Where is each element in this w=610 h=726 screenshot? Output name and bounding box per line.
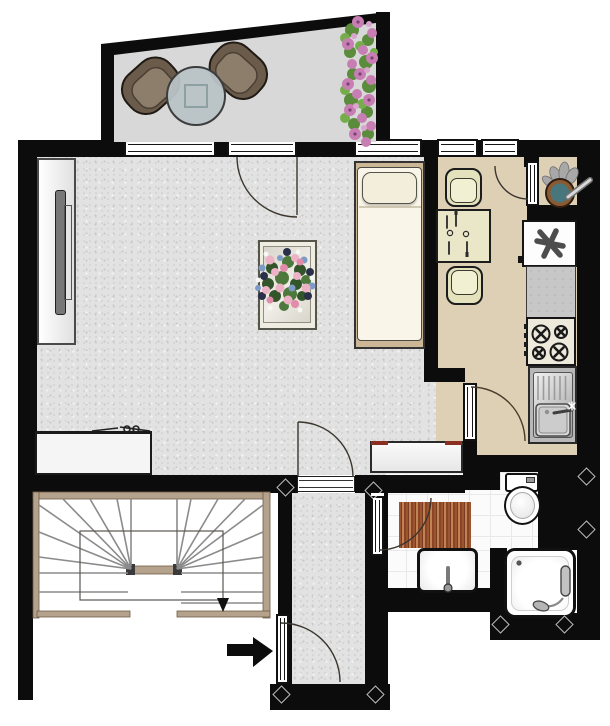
bathroom-door (371, 496, 384, 556)
kitchen-window-1 (437, 139, 478, 157)
staircase (33, 492, 270, 618)
balcony-floor (114, 23, 376, 142)
bath-mat (399, 502, 471, 548)
shower-tray-inner (511, 556, 569, 611)
sideboard-right-accent-left (371, 441, 388, 445)
entrance-door (276, 614, 289, 684)
wall-left-stairwell (18, 483, 33, 700)
balcony-table (167, 67, 225, 125)
kitchen-counter (526, 266, 576, 318)
sideboard-left (35, 431, 152, 475)
wall-balcony-left (101, 44, 114, 142)
wall-balcony-right (376, 12, 390, 142)
floor-plan (0, 0, 610, 726)
flower-table-top (263, 246, 311, 323)
bed-window (354, 139, 422, 157)
wall-kitchen-step (424, 368, 465, 382)
kitchen-chair-bottom-cushion (451, 270, 478, 295)
wall-balcony-top (101, 12, 388, 57)
wall-hallway-right (365, 553, 388, 687)
wall-right (577, 140, 600, 640)
balcony-door (227, 139, 297, 157)
balcony-flower-boxes (340, 16, 378, 147)
living-room-window (124, 139, 216, 157)
wall-bath-right-block (538, 455, 577, 550)
nook-door (526, 161, 539, 206)
wall-living-bottom-left (33, 475, 298, 493)
toilet-flush-button (526, 477, 535, 483)
bed-pillow (362, 172, 417, 204)
freezer (522, 220, 577, 267)
wall-hallway-right-upper-b (384, 490, 388, 556)
kitchen-sink-tray (533, 372, 573, 438)
wardrobe-inner-frame (64, 205, 72, 300)
bathroom-sink (417, 548, 478, 593)
entrance-arrow (227, 637, 273, 667)
kitchen-table (436, 209, 491, 263)
stair-down-arrow (217, 598, 229, 612)
hallway-doorway-sill (297, 476, 355, 492)
sideboard-right-accent-right (445, 441, 462, 445)
sideboard-right (370, 441, 463, 473)
toilet-seat (510, 492, 535, 519)
hallway-floor (290, 493, 368, 687)
kitchen-chair-top-cushion (450, 178, 477, 203)
balcony-chair-left (114, 49, 188, 122)
wall-kitchen-left (424, 157, 438, 370)
kitchen-window-2 (481, 139, 519, 157)
kitchen-door (463, 383, 477, 441)
balcony-chair-right (201, 34, 275, 107)
freezer-hinge (518, 256, 524, 263)
stove (526, 317, 576, 366)
